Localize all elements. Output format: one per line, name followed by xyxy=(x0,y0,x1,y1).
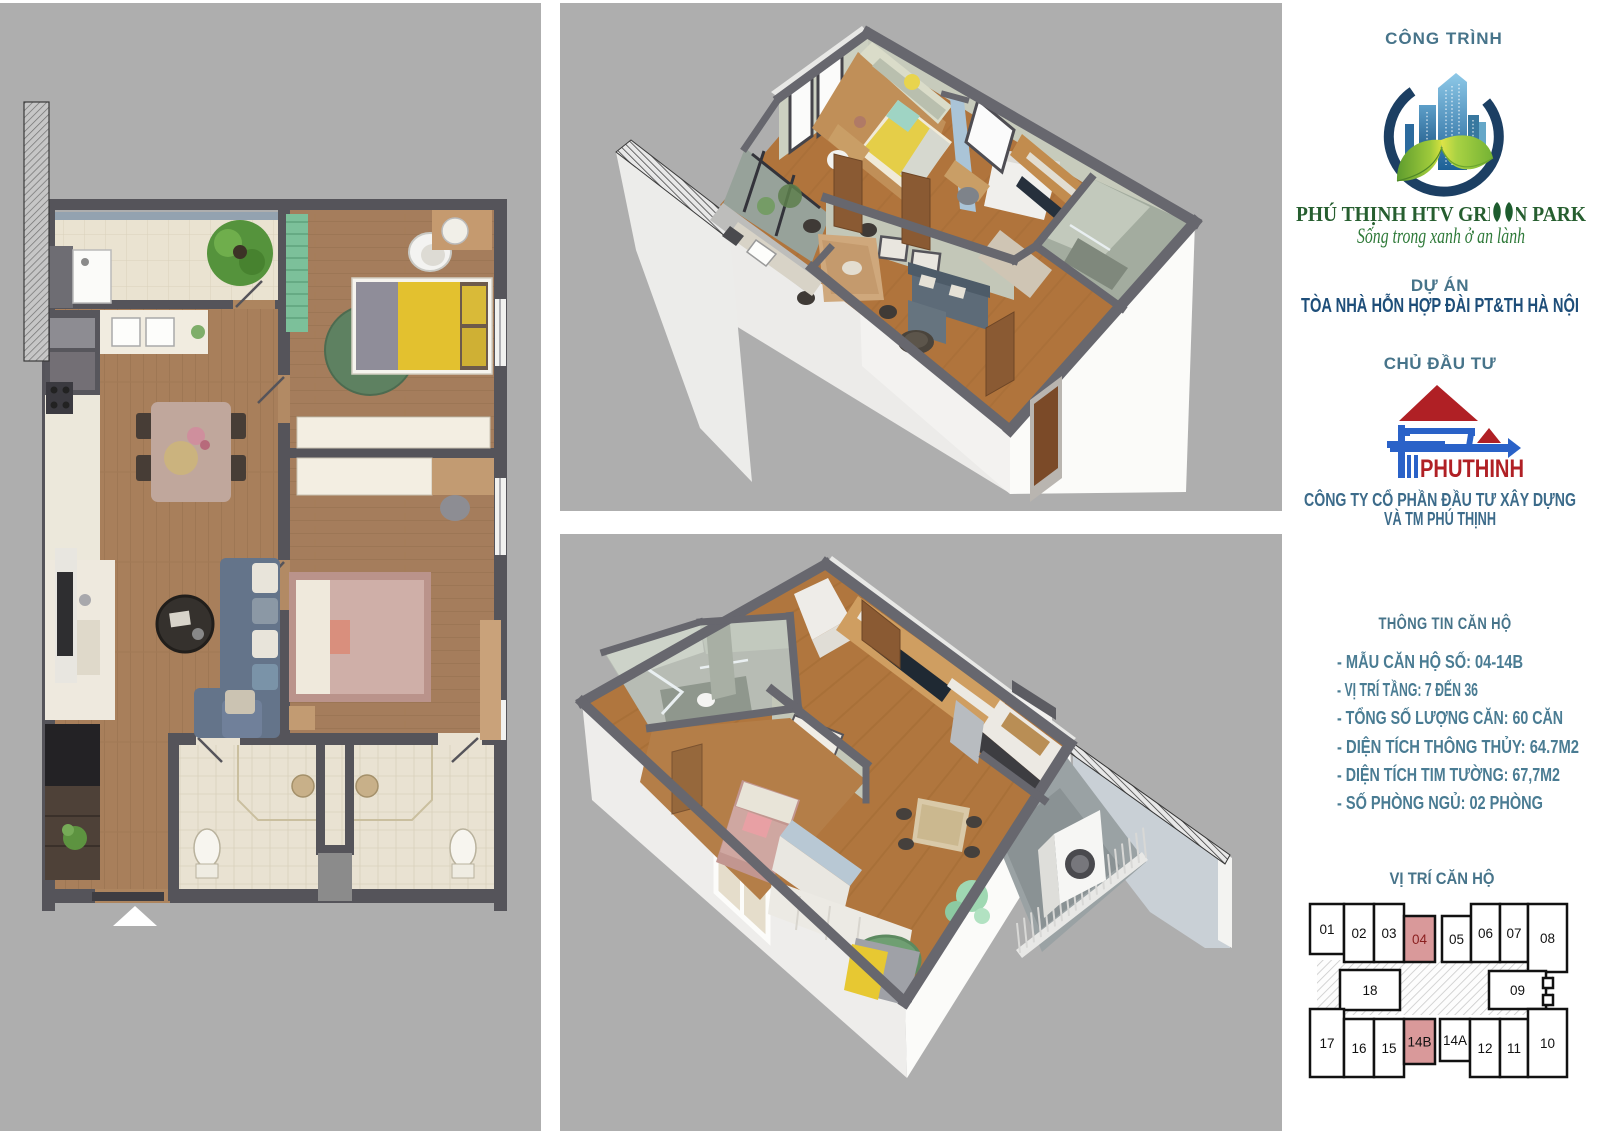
svg-text:02: 02 xyxy=(1351,926,1366,941)
svg-text:06: 06 xyxy=(1478,926,1493,941)
svg-text:15: 15 xyxy=(1381,1041,1396,1056)
svg-text:- DIỆN TÍCH TIM TƯỜNG: 67,7M2: - DIỆN TÍCH TIM TƯỜNG: 67,7M2 xyxy=(1337,764,1560,785)
svg-text:07: 07 xyxy=(1506,926,1521,941)
svg-text:CÔNG TRÌNH: CÔNG TRÌNH xyxy=(1385,29,1503,48)
svg-text:- VỊ TRÍ TẦNG: 7 ĐẾN 36: - VỊ TRÍ TẦNG: 7 ĐẾN 36 xyxy=(1337,679,1478,700)
svg-text:PHUTHINH: PHUTHINH xyxy=(1420,455,1524,483)
svg-text:18: 18 xyxy=(1362,983,1377,998)
svg-text:- MẪU CĂN HỘ SỐ: 04-14B: - MẪU CĂN HỘ SỐ: 04-14B xyxy=(1337,651,1523,672)
svg-text:16: 16 xyxy=(1351,1041,1366,1056)
svg-text:- DIỆN TÍCH THÔNG THỦY: 64.7M2: - DIỆN TÍCH THÔNG THỦY: 64.7M2 xyxy=(1337,736,1579,757)
svg-text:09: 09 xyxy=(1510,983,1525,998)
svg-text:- SỐ PHÒNG NGỦ: 02 PHÒNG: - SỐ PHÒNG NGỦ: 02 PHÒNG xyxy=(1337,792,1543,813)
svg-text:01: 01 xyxy=(1319,922,1334,937)
svg-text:05: 05 xyxy=(1449,932,1464,947)
svg-text:14B: 14B xyxy=(1407,1035,1431,1050)
svg-text:VỊ TRÍ CĂN HỘ: VỊ TRÍ CĂN HỘ xyxy=(1390,869,1495,888)
svg-text:08: 08 xyxy=(1540,931,1555,946)
svg-text:- TỔNG SỐ LƯỢNG CĂN: 60 CĂN: - TỔNG SỐ LƯỢNG CĂN: 60 CĂN xyxy=(1337,707,1563,728)
svg-text:THÔNG TIN CĂN HỘ: THÔNG TIN CĂN HỘ xyxy=(1379,614,1512,633)
svg-text:12: 12 xyxy=(1477,1041,1492,1056)
svg-text:17: 17 xyxy=(1319,1036,1334,1051)
svg-text:TÒA NHÀ HỖN HỢP ĐÀI PT&TH HÀ N: TÒA NHÀ HỖN HỢP ĐÀI PT&TH HÀ NỘI xyxy=(1301,293,1579,317)
svg-text:10: 10 xyxy=(1540,1036,1555,1051)
svg-text:CHỦ ĐẦU TƯ: CHỦ ĐẦU TƯ xyxy=(1384,354,1497,373)
svg-text:11: 11 xyxy=(1507,1041,1521,1056)
svg-text:03: 03 xyxy=(1381,926,1396,941)
svg-text:CÔNG TY CỔ PHẦN ĐẦU TƯ XÂY DỰN: CÔNG TY CỔ PHẦN ĐẦU TƯ XÂY DỰNG xyxy=(1304,489,1576,510)
svg-text:Sống trong xanh ở an lành: Sống trong xanh ở an lành xyxy=(1357,223,1525,248)
svg-text:04: 04 xyxy=(1412,932,1428,947)
svg-text:VÀ TM PHÚ THỊNH: VÀ TM PHÚ THỊNH xyxy=(1384,508,1496,529)
svg-text:14A: 14A xyxy=(1443,1033,1467,1048)
svg-text:DỰ ÁN: DỰ ÁN xyxy=(1411,276,1469,295)
